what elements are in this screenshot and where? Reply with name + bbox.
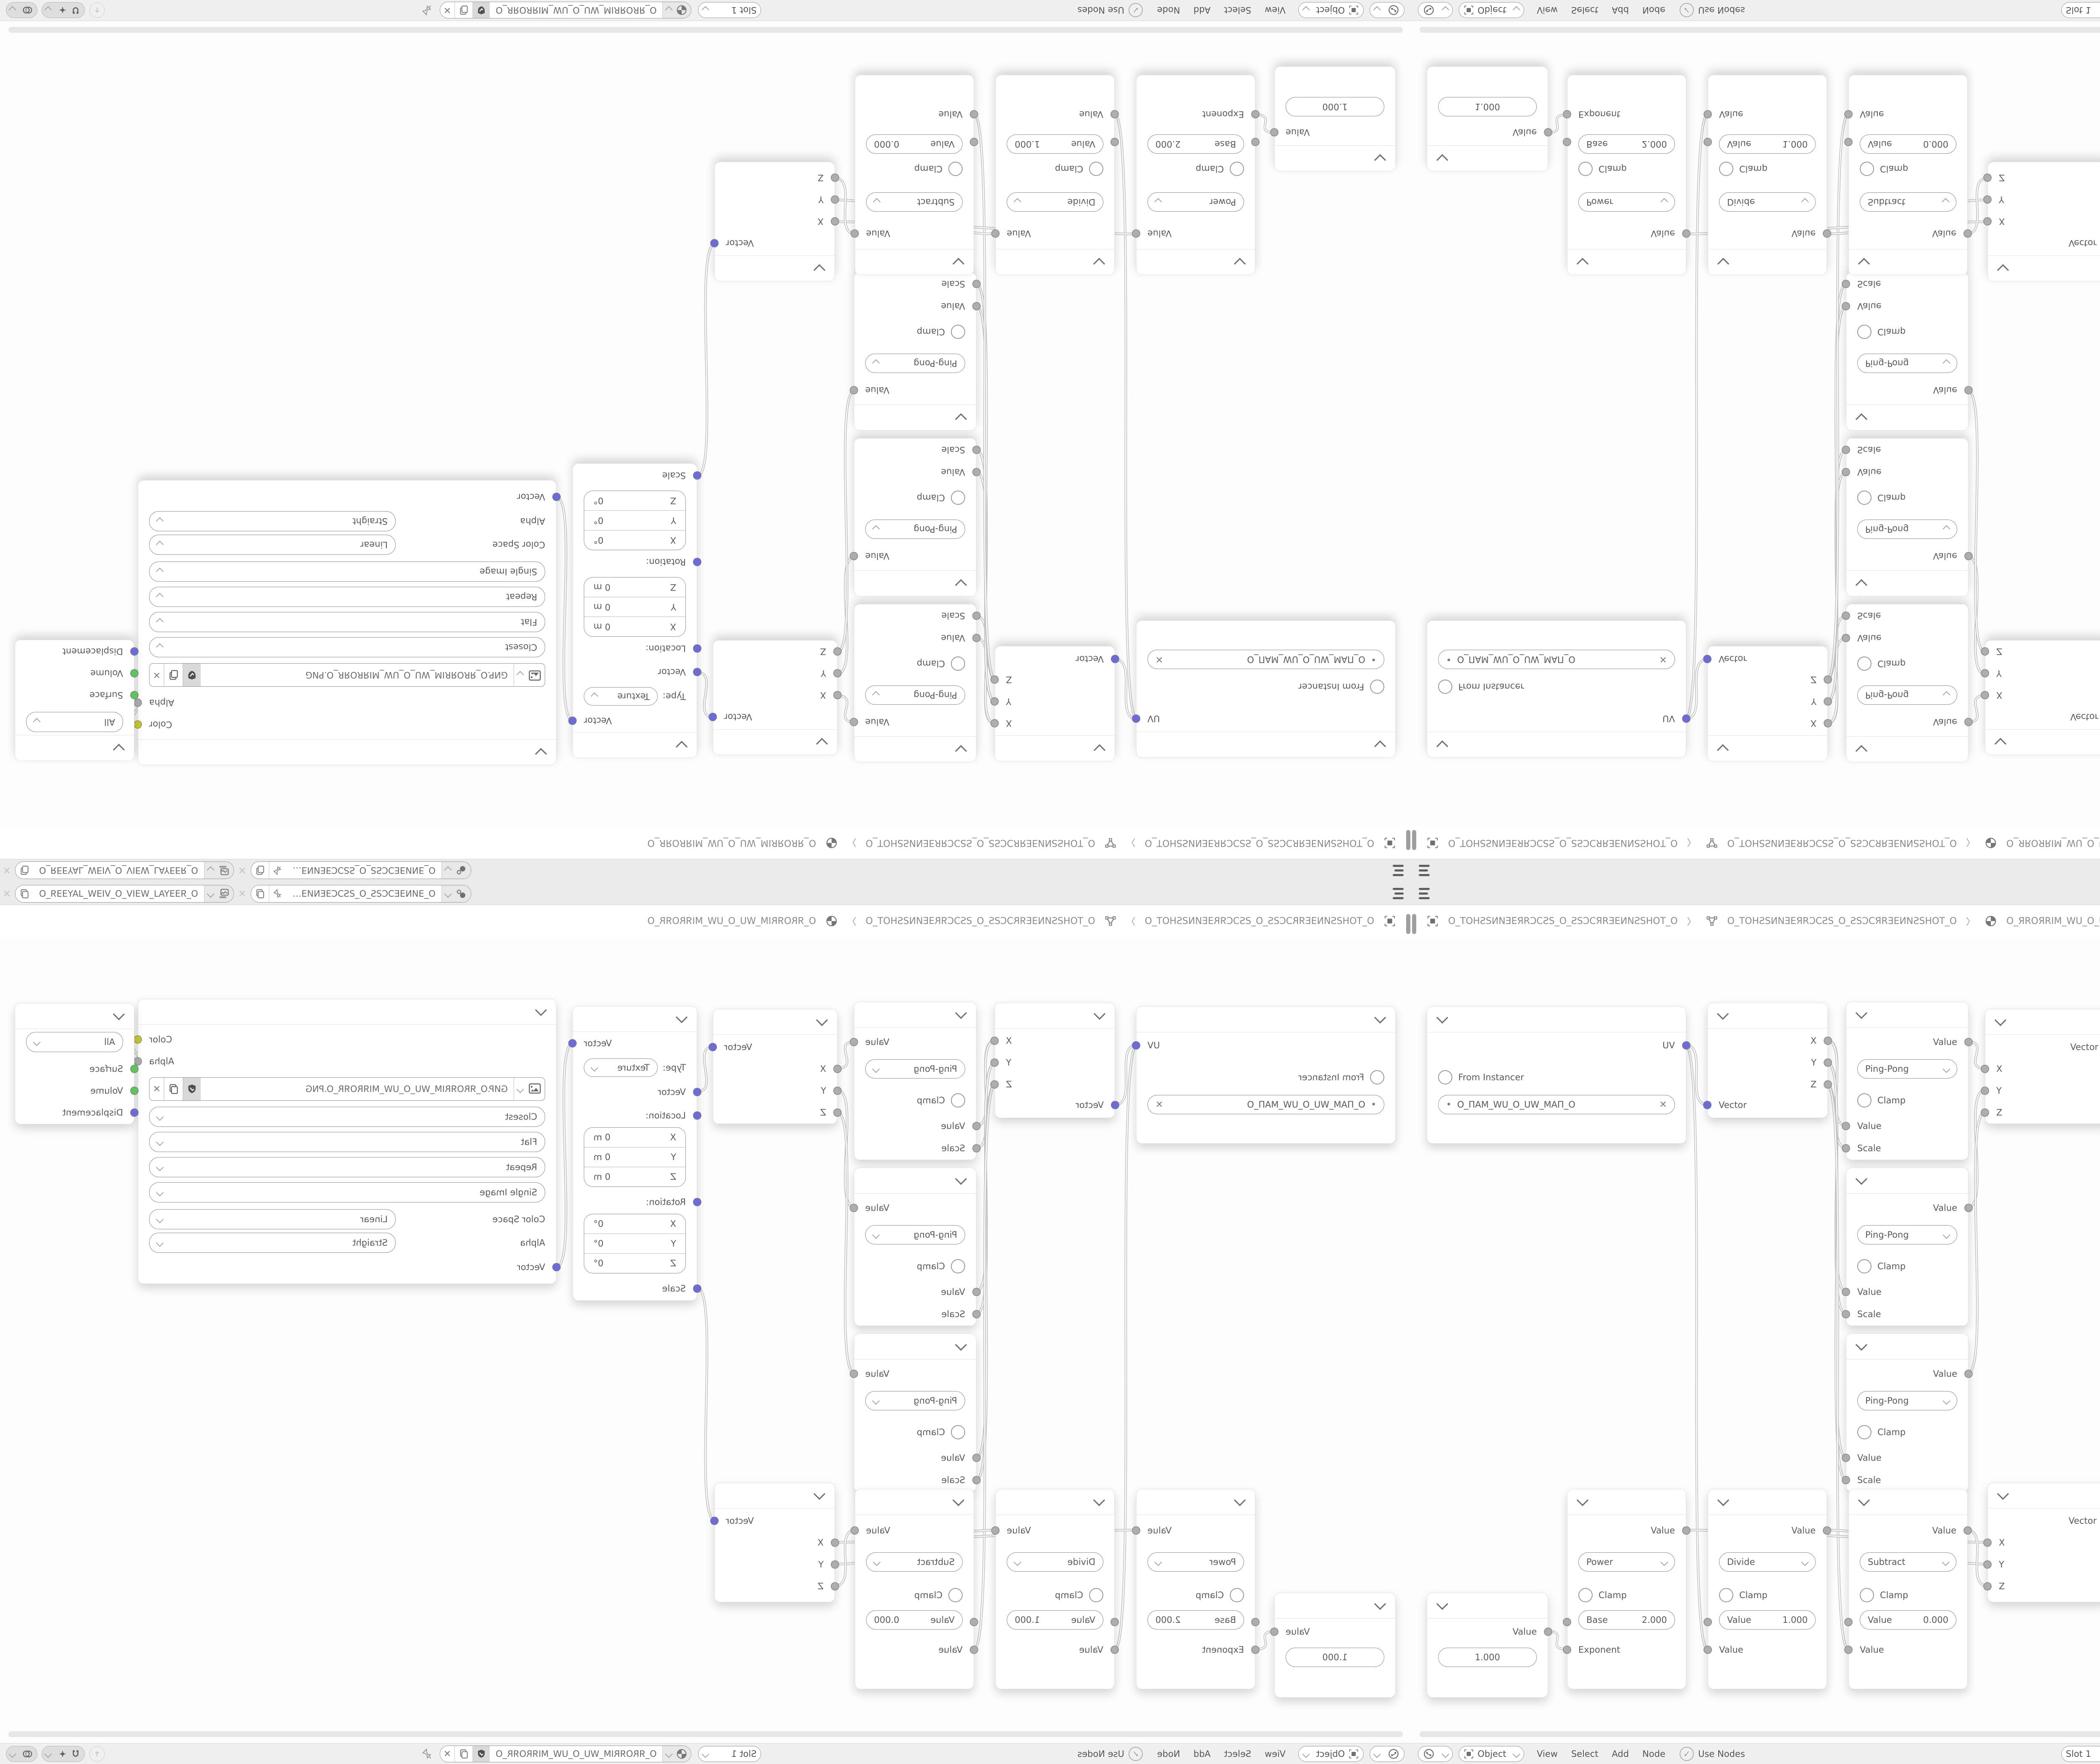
vertical-scrollbar[interactable] [1406, 914, 1410, 934]
socket-value-in[interactable] [1563, 1646, 1571, 1654]
close-icon[interactable]: ✕ [1659, 654, 1667, 665]
menu-view[interactable]: View [1265, 1749, 1286, 1759]
socket-y-out[interactable] [990, 1058, 999, 1067]
collapse-icon[interactable] [1577, 1494, 1588, 1506]
operation-dropdown[interactable]: Ping-Pong [1857, 1391, 1957, 1410]
scene-icon[interactable] [441, 885, 471, 902]
node-combine-xyz-top[interactable]: VectorXYZ [1985, 640, 2100, 755]
collapse-icon[interactable] [1234, 258, 1246, 270]
from-instancer-checkbox[interactable] [1438, 680, 1452, 694]
socket-vector-out[interactable] [709, 713, 717, 721]
material-icon[interactable] [662, 1746, 691, 1762]
slot-dropdown[interactable]: Slot 1 [2061, 1746, 2100, 1762]
collapse-icon[interactable] [955, 1007, 967, 1019]
socket-x-in[interactable] [833, 1065, 842, 1073]
color-space-dropdown[interactable]: Linear [149, 1209, 396, 1229]
collapse-icon[interactable] [1858, 1494, 1870, 1506]
socket-value-out[interactable] [1270, 128, 1278, 136]
operation-dropdown[interactable]: Divide [1719, 1552, 1816, 1572]
color-space-dropdown[interactable]: Linear [149, 535, 396, 555]
menu-view[interactable]: View [1265, 5, 1286, 15]
node-header[interactable] [1988, 1483, 2100, 1509]
remove-view-layer-button[interactable]: ✕ [3, 888, 11, 900]
new-material-button[interactable] [454, 1746, 472, 1762]
value-field[interactable]: 1.000 [1438, 97, 1537, 116]
socket-value-in[interactable] [1842, 1288, 1850, 1296]
socket-x-in[interactable] [1981, 691, 1989, 699]
operation-dropdown[interactable]: Divide [1007, 192, 1103, 212]
snapping-controls[interactable] [42, 1746, 85, 1762]
socket-scale-in[interactable] [972, 1310, 981, 1318]
operation-dropdown[interactable]: Subtract [1860, 1552, 1956, 1572]
node-math-power[interactable]: ValuePowerClampBase2.000Exponent [1136, 1489, 1255, 1689]
node-header[interactable] [1427, 1593, 1548, 1619]
node-header[interactable] [1708, 735, 1827, 761]
node-header[interactable] [854, 1002, 976, 1028]
node-math-power[interactable]: ValuePowerClampBase2.000Exponent [1136, 75, 1255, 275]
operation-dropdown[interactable]: Ping-Pong [1857, 1225, 1957, 1244]
alpha-dropdown[interactable]: Straight [149, 511, 396, 531]
clamp-checkbox[interactable] [1089, 1588, 1103, 1602]
breadcrumb-mesh[interactable]: O_TOHƧSИNƎEЯRƆCƧS_O_ƧSƆCЯRƎEИNƧSHOT_O [1727, 838, 1957, 848]
clamp-checkbox[interactable] [951, 491, 965, 505]
alpha-dropdown[interactable]: Straight [149, 1233, 396, 1253]
socket-volume-in[interactable] [130, 669, 139, 677]
collapse-icon[interactable] [113, 1008, 125, 1020]
socket-y-out[interactable] [1824, 697, 1832, 706]
pin-icon[interactable] [421, 4, 434, 16]
socket-value-in[interactable] [970, 1646, 978, 1654]
socket-value-in[interactable] [1842, 468, 1850, 476]
node-header[interactable] [15, 735, 134, 761]
new-image-button[interactable] [164, 664, 183, 686]
collapse-icon[interactable] [1093, 258, 1105, 270]
socket-color-out[interactable] [134, 720, 142, 729]
node-header[interactable] [1846, 1002, 1968, 1028]
socket-x-in[interactable] [1981, 1065, 1989, 1073]
socket-y-in[interactable] [831, 1560, 839, 1569]
node-header[interactable] [1567, 249, 1686, 275]
operation-dropdown[interactable]: Divide [1719, 192, 1816, 212]
use-nodes-checkbox[interactable]: ✓ Use Nodes [1077, 1747, 1143, 1761]
node-math-power[interactable]: ValuePowerClampBase2.000Exponent [1567, 1489, 1686, 1689]
socket-value-in[interactable] [972, 1288, 981, 1296]
node-header[interactable] [713, 1009, 837, 1035]
location-fields[interactable]: X0 m Y0 m Z0 m [584, 1127, 686, 1187]
socket-vector-in[interactable] [1703, 655, 1711, 663]
unlink-material-button[interactable]: ✕ [440, 2, 454, 18]
node-header[interactable] [138, 739, 556, 765]
value-field[interactable]: 1.000 [1438, 1648, 1537, 1667]
shader-type-dropdown[interactable]: Object [1298, 1746, 1364, 1762]
node-value[interactable]: Value 1.000 [1427, 1593, 1548, 1698]
node-math-divide[interactable]: ValueDivideClampValue1.000Value [1708, 75, 1827, 275]
new-view-layer-button[interactable] [16, 885, 33, 902]
node-math-power[interactable]: ValuePowerClampBase2.000Exponent [1567, 75, 1686, 275]
socket-value-in[interactable] [1842, 634, 1850, 642]
clamp-checkbox[interactable] [951, 1093, 965, 1108]
socket-field-in[interactable] [1704, 138, 1712, 146]
clamp-checkbox[interactable] [1860, 162, 1874, 176]
collapse-icon[interactable] [1856, 745, 1867, 757]
interpolation-dropdown[interactable]: Closest [149, 1107, 545, 1127]
socket-vector-in[interactable] [693, 668, 701, 676]
node-math-divide[interactable]: ValueDivideClampValue1.000Value [995, 75, 1115, 275]
socket-x-in[interactable] [831, 217, 839, 226]
breadcrumb-mesh[interactable]: O_TOHƧSИNƎEЯRƆCƧS_O_ƧSƆCЯRƎEИNƧSHOT_O [1727, 916, 1957, 927]
slot-dropdown[interactable]: Slot 1 [698, 2, 761, 18]
socket-y-in[interactable] [833, 669, 842, 677]
node-combine-xyz-top[interactable]: VectorXYZ [1985, 1009, 2100, 1124]
node-header[interactable] [1708, 249, 1827, 275]
clamp-checkbox[interactable] [1857, 1425, 1872, 1439]
socket-volume-in[interactable] [130, 1087, 139, 1095]
socket-vector-in[interactable] [693, 1088, 701, 1096]
collapse-icon[interactable] [1374, 1012, 1386, 1024]
rotation-fields[interactable]: X0° Y0° Z0° [584, 491, 686, 550]
interpolation-dropdown[interactable]: Closest [149, 637, 545, 657]
collapse-icon[interactable] [1997, 264, 2009, 276]
node-math-pingpong-2[interactable]: ValuePing-PongClampValueScale [1846, 1168, 1969, 1326]
socket-vector-in[interactable] [1111, 1101, 1119, 1109]
node-image-texture[interactable]: Color Alpha GИP.O_ЯROЯRIM_WU_O_UW_MIЯROЯ… [138, 480, 556, 765]
breadcrumb-material[interactable]: O_ЯROЯRIM_WU_O_UW_MIЯROЯR_O [647, 916, 816, 927]
collapse-icon[interactable] [1856, 1339, 1867, 1351]
socket-y-in[interactable] [1983, 195, 1992, 204]
socket-rotation-in[interactable] [693, 558, 701, 566]
node-math-subtract[interactable]: ValueSubtractClampValue0.000Value [1848, 75, 1968, 275]
socket-vector-in[interactable] [552, 1263, 561, 1271]
scene-selector[interactable]: O_ƎИNƎEƆCƧS_O_ƧSƆCƎENИƎ… [251, 885, 471, 903]
socket-value-out[interactable] [1544, 1627, 1552, 1636]
node-combine-xyz-top[interactable]: VectorXYZ [713, 1009, 837, 1124]
operation-dropdown[interactable]: Divide [1007, 1552, 1103, 1572]
socket-x-out[interactable] [990, 719, 999, 727]
socket-z-in[interactable] [833, 647, 842, 656]
horizontal-scrollbar[interactable] [1420, 1731, 2100, 1737]
node-header[interactable] [854, 570, 976, 596]
value-field[interactable]: Value0.000 [866, 1610, 963, 1630]
value-field[interactable]: Value1.000 [1719, 134, 1816, 154]
socket-value-out[interactable] [991, 229, 1000, 238]
socket-value-out[interactable] [1964, 1204, 1973, 1212]
node-math-subtract[interactable]: ValueSubtractClampValue0.000Value [1848, 1489, 1968, 1689]
node-canvas[interactable]: UV From Instancer • O_ПAM_WU_O_UW_MAП_O … [1411, 882, 2100, 1764]
clamp-checkbox[interactable] [951, 1425, 965, 1439]
socket-value-out[interactable] [991, 1526, 1000, 1535]
collapse-icon[interactable] [1374, 1598, 1386, 1610]
image-icon[interactable] [514, 664, 545, 686]
uv-map-select[interactable]: • O_ПAM_WU_O_UW_MAП_O ✕ [1438, 650, 1675, 669]
socket-value-in[interactable] [1110, 1646, 1119, 1654]
collapse-icon[interactable] [535, 748, 547, 760]
socket-alpha-out[interactable] [134, 1057, 142, 1066]
clamp-checkbox[interactable] [1719, 162, 1733, 176]
node-header[interactable] [1137, 1489, 1255, 1515]
socket-displacement-in[interactable] [130, 1108, 139, 1117]
node-header[interactable] [713, 729, 837, 755]
operation-dropdown[interactable]: Power [1147, 192, 1244, 212]
socket-field-in[interactable] [1563, 1618, 1571, 1626]
node-header[interactable] [1708, 1003, 1827, 1029]
socket-scale-in[interactable] [972, 280, 981, 288]
node-math-subtract[interactable]: ValueSubtractClampValue0.000Value [855, 1489, 974, 1689]
collapse-icon[interactable] [1717, 258, 1729, 270]
socket-value-in[interactable] [1563, 110, 1571, 118]
socket-field-in[interactable] [970, 138, 978, 146]
socket-value-out[interactable] [1132, 1526, 1140, 1535]
socket-scale-in[interactable] [972, 612, 981, 620]
socket-z-in[interactable] [1981, 1108, 1989, 1117]
operation-dropdown[interactable]: Ping-Pong [1857, 354, 1957, 373]
socket-z-out[interactable] [990, 1080, 999, 1089]
new-view-layer-button[interactable] [16, 862, 33, 879]
node-header[interactable] [715, 1483, 835, 1509]
source-dropdown[interactable]: Single Image [149, 1182, 545, 1202]
socket-z-in[interactable] [831, 173, 839, 182]
socket-scale-in[interactable] [972, 1476, 981, 1484]
proportional-editing-icon[interactable] [89, 1746, 105, 1762]
clamp-checkbox[interactable] [1089, 162, 1103, 176]
clamp-checkbox[interactable] [1578, 1588, 1593, 1602]
node-canvas[interactable]: UV From Instancer • O_ПAM_WU_O_UW_MAП_O … [1411, 0, 2100, 882]
unlink-image-button[interactable]: ✕ [150, 664, 164, 686]
clamp-checkbox[interactable] [1860, 1588, 1874, 1602]
breadcrumb-mesh[interactable]: O_TOHƧSИNƎEЯRƆCƧS_O_ƧSƆCЯRƎEИNƧSHOT_O [866, 916, 1095, 927]
socket-z-out[interactable] [990, 675, 999, 684]
use-nodes-checkbox[interactable]: ✓ Use Nodes [1680, 3, 1745, 17]
scene-icon[interactable] [441, 862, 471, 879]
collapse-icon[interactable] [1717, 1494, 1729, 1506]
socket-displacement-in[interactable] [130, 647, 139, 656]
node-header[interactable] [1567, 1489, 1686, 1515]
collapse-icon[interactable] [1436, 154, 1448, 166]
clamp-checkbox[interactable] [951, 325, 965, 339]
value-field[interactable]: Base2.000 [1147, 134, 1244, 154]
unlink-image-button[interactable]: ✕ [150, 1078, 164, 1100]
collapse-icon[interactable] [676, 741, 688, 753]
material-icon[interactable] [662, 2, 691, 18]
socket-value-in[interactable] [1844, 110, 1853, 118]
menu-select[interactable]: Select [1224, 5, 1251, 15]
node-header[interactable] [1849, 249, 1967, 275]
node-separate-xyz[interactable]: X Y Z Vector [995, 646, 1115, 761]
uv-map-select[interactable]: • O_ПAM_WU_O_UW_MAП_O ✕ [1438, 1095, 1675, 1114]
node-separate-xyz[interactable]: X Y Z Vector [1707, 1003, 1828, 1118]
socket-value-out[interactable] [1682, 1526, 1690, 1535]
node-header[interactable] [1275, 145, 1395, 171]
image-icon[interactable] [514, 1078, 545, 1100]
socket-vector-in[interactable] [1703, 1101, 1711, 1109]
collapse-icon[interactable] [1436, 740, 1448, 752]
socket-vector-in[interactable] [1111, 655, 1119, 663]
collapse-icon[interactable] [1234, 1494, 1246, 1506]
node-combine-xyz-bottom[interactable]: VectorXYZ [1987, 162, 2100, 281]
operation-dropdown[interactable]: Ping-Pong [865, 685, 965, 705]
operation-dropdown[interactable]: Power [1578, 192, 1675, 212]
collapse-icon[interactable] [676, 1011, 688, 1023]
menu-view[interactable]: View [1537, 5, 1558, 15]
socket-value-in[interactable] [972, 634, 981, 642]
editor-type-button[interactable] [1418, 2, 1453, 18]
breadcrumb-material[interactable]: O_ЯROЯRIM_WU_O_UW_MIЯROЯR_O [2006, 838, 2100, 848]
socket-vector-in[interactable] [552, 493, 561, 501]
view-layer-icon[interactable] [204, 885, 234, 902]
clamp-checkbox[interactable] [1719, 1588, 1733, 1602]
node-header[interactable] [1846, 1334, 1968, 1360]
value-field[interactable]: Base2.000 [1578, 1610, 1675, 1630]
node-math-pingpong-3[interactable]: ValuePing-PongClampValueScale [854, 272, 976, 430]
vertical-scrollbar[interactable] [1412, 914, 1416, 934]
use-nodes-checkbox[interactable]: ✓ Use Nodes [1680, 1747, 1745, 1761]
collapse-icon[interactable] [1374, 154, 1386, 166]
socket-surface-in[interactable] [130, 1065, 139, 1073]
new-scene-button[interactable] [251, 862, 269, 879]
output-target-dropdown[interactable]: All [26, 712, 123, 732]
collapse-icon[interactable] [1858, 258, 1870, 270]
operation-dropdown[interactable]: Ping-Pong [865, 354, 965, 373]
socket-scale-in[interactable] [1842, 1310, 1850, 1318]
socket-z-out[interactable] [1824, 1080, 1832, 1089]
socket-uv-out[interactable] [1132, 1041, 1140, 1050]
socket-value-out[interactable] [850, 718, 858, 726]
location-fields[interactable]: X0 m Y0 m Z0 m [584, 577, 686, 637]
socket-value-in[interactable] [972, 468, 981, 476]
node-header[interactable] [1427, 145, 1548, 171]
remove-view-layer-button[interactable]: ✕ [3, 864, 11, 876]
breadcrumb-object[interactable]: O_TOHƧSИNƎEЯRƆCƧS_O_ƧSƆCЯRƎEИNƧSHOT_O [1145, 838, 1375, 848]
mapping-type-dropdown[interactable]: Texture [584, 1058, 658, 1077]
socket-value-out[interactable] [1544, 128, 1552, 136]
collapse-icon[interactable] [955, 745, 967, 757]
node-math-pingpong-1[interactable]: ValuePing-PongClampValueScale [1846, 604, 1969, 762]
collapse-icon[interactable] [814, 264, 825, 276]
close-icon[interactable]: ✕ [1155, 654, 1163, 665]
value-field[interactable]: Value0.000 [1860, 1610, 1956, 1630]
clamp-checkbox[interactable] [1857, 1093, 1872, 1108]
socket-field-in[interactable] [1251, 138, 1260, 146]
node-combine-xyz-bottom[interactable]: VectorXYZ [1987, 1483, 2100, 1602]
operation-dropdown[interactable]: Ping-Pong [865, 1225, 965, 1244]
value-field[interactable]: 1.000 [1286, 97, 1384, 116]
operation-dropdown[interactable]: Ping-Pong [865, 520, 965, 539]
socket-value-out[interactable] [1270, 1627, 1278, 1636]
fake-user-button[interactable] [472, 2, 490, 18]
socket-y-in[interactable] [1983, 1560, 1992, 1569]
breadcrumb-object[interactable]: O_TOHƧSИNƎEЯRƆCƧS_O_ƧSƆCЯRƎEИNƧSHOT_O [1448, 838, 1678, 848]
socket-scale-in[interactable] [1842, 612, 1850, 620]
socket-field-in[interactable] [1110, 138, 1119, 146]
socket-value-out[interactable] [1963, 229, 1972, 238]
clamp-checkbox[interactable] [948, 162, 963, 176]
menu-select[interactable]: Select [1571, 1749, 1599, 1759]
node-mapping[interactable]: Vector Type: Texture Vector Location: X0… [572, 1006, 697, 1301]
socket-z-in[interactable] [1981, 647, 1989, 656]
socket-value-out[interactable] [1964, 718, 1973, 726]
value-field[interactable]: 1.000 [1286, 1648, 1384, 1667]
hamburger-menu-icon[interactable] [1391, 865, 1404, 877]
node-header[interactable] [573, 732, 697, 758]
horizontal-scrollbar[interactable] [1420, 27, 2100, 33]
menu-select[interactable]: Select [1224, 1749, 1251, 1759]
snapping-controls[interactable] [42, 2, 85, 18]
node-value[interactable]: Value 1.000 [1427, 66, 1548, 171]
collapse-icon[interactable] [955, 1339, 967, 1351]
shader-type-dropdown[interactable]: Object [1459, 1746, 1524, 1762]
node-header[interactable] [854, 736, 976, 762]
unlink-scene-button[interactable]: ✕ [238, 864, 247, 876]
collapse-icon[interactable] [113, 744, 125, 756]
socket-z-out[interactable] [1824, 675, 1832, 684]
fake-user-button[interactable] [472, 1746, 490, 1762]
socket-x-out[interactable] [1824, 719, 1832, 727]
node-material-output[interactable]: All Surface Volume Displacement [15, 1003, 134, 1124]
collapse-icon[interactable] [1997, 1488, 2009, 1500]
menu-add[interactable]: Add [1612, 5, 1629, 15]
shader-type-dropdown[interactable]: Object [1459, 2, 1524, 18]
socket-scale-in[interactable] [972, 1144, 981, 1152]
node-math-pingpong-2[interactable]: ValuePing-PongClampValueScale [854, 438, 976, 596]
socket-rotation-in[interactable] [693, 1198, 701, 1206]
socket-value-in[interactable] [972, 1454, 981, 1462]
node-header[interactable] [1137, 1007, 1395, 1032]
socket-x-in[interactable] [1983, 1538, 1992, 1547]
node-header[interactable] [855, 249, 974, 275]
new-image-button[interactable] [164, 1078, 183, 1100]
socket-scale-in[interactable] [1842, 1144, 1850, 1152]
clamp-checkbox[interactable] [951, 656, 965, 671]
socket-scale-in[interactable] [972, 446, 981, 454]
source-dropdown[interactable]: Single Image [149, 562, 545, 582]
node-mapping[interactable]: Vector Type: Texture Vector Location: X0… [572, 463, 697, 758]
value-field[interactable]: Base2.000 [1578, 134, 1675, 154]
operation-dropdown[interactable]: Ping-Pong [1857, 1059, 1957, 1079]
operation-dropdown[interactable]: Ping-Pong [865, 1391, 965, 1410]
socket-value-out[interactable] [1964, 1038, 1973, 1046]
node-header[interactable] [1988, 255, 2100, 281]
breadcrumb-material[interactable]: O_ЯROЯRIM_WU_O_UW_MIЯROЯR_O [2006, 916, 2100, 927]
pin-icon[interactable] [269, 862, 287, 879]
socket-location-in[interactable] [693, 644, 701, 653]
socket-z-in[interactable] [833, 1108, 842, 1117]
operation-dropdown[interactable]: Ping-Pong [1857, 520, 1957, 539]
collapse-icon[interactable] [1436, 1598, 1448, 1610]
node-canvas[interactable]: UV From Instancer • O_ПAM_WU_O_UW_MAП_O … [0, 0, 1411, 882]
socket-value-out[interactable] [1823, 229, 1831, 238]
node-header[interactable] [1849, 1489, 1967, 1515]
overlays-toggle[interactable] [6, 2, 37, 18]
editor-type-button[interactable] [1370, 2, 1404, 18]
node-math-pingpong-1[interactable]: ValuePing-PongClampValueScale [1846, 1002, 1969, 1160]
socket-field-in[interactable] [1844, 1618, 1853, 1626]
socket-value-in[interactable] [1842, 1454, 1850, 1462]
projection-dropdown[interactable]: Flat [149, 1132, 545, 1152]
socket-value-out[interactable] [1964, 552, 1973, 560]
node-header[interactable] [1275, 1593, 1395, 1619]
node-header[interactable] [1427, 1007, 1686, 1032]
node-uv-map[interactable]: UV From Instancer • O_ПAM_WU_O_UW_MAП_O … [1427, 1006, 1686, 1144]
node-header[interactable] [996, 1489, 1114, 1515]
node-value[interactable]: Value 1.000 [1274, 1593, 1396, 1698]
menu-select[interactable]: Select [1571, 5, 1599, 15]
node-header[interactable] [1985, 729, 2100, 755]
new-scene-button[interactable] [251, 885, 269, 902]
view-layer-selector[interactable]: O_ЯƎƎYA⅃_WƎIV_O_VIƎW_⅃AYƎƎЯ_O [15, 885, 234, 903]
menu-add[interactable]: Add [1194, 5, 1211, 15]
socket-value-out[interactable] [850, 552, 858, 560]
socket-uv-out[interactable] [1682, 714, 1690, 723]
socket-z-in[interactable] [1983, 1582, 1992, 1591]
